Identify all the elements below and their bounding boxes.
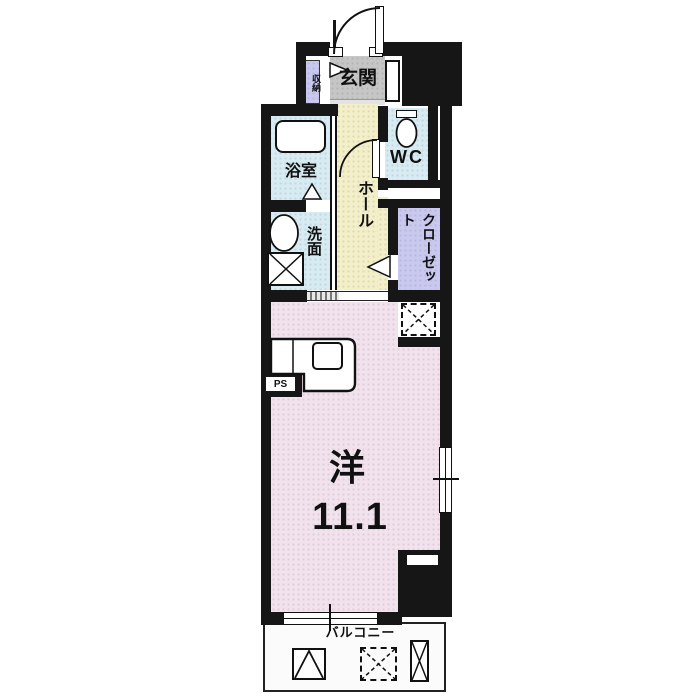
pipe-space-box: PS	[266, 377, 295, 391]
washing-machine-space-icon	[267, 252, 304, 286]
toilet-tank-icon	[396, 110, 417, 118]
hall-floor-lower	[378, 197, 388, 290]
toilet-label: WC	[387, 147, 427, 168]
sliding-door-pocket	[305, 291, 339, 301]
wall	[378, 106, 388, 142]
wall	[388, 208, 398, 255]
wall	[428, 106, 438, 183]
wall	[261, 104, 271, 625]
entrance-storage-label: 収納	[304, 63, 321, 103]
wall	[378, 612, 402, 625]
window-frame-line	[445, 448, 446, 512]
wall	[261, 290, 307, 302]
washroom-label: 洗面	[302, 226, 322, 284]
balcony-laundry-space-icon	[360, 647, 397, 681]
wc-door-leaf	[372, 139, 380, 178]
refrigerator-space-icon	[401, 303, 436, 336]
wall	[398, 337, 444, 347]
wall	[261, 104, 338, 116]
partition-board-icon	[410, 640, 429, 682]
wall	[378, 199, 440, 208]
main-room-size-label: 11.1	[290, 496, 410, 540]
bathroom-label: 浴室	[277, 163, 325, 181]
main-room-type-label: 洋	[325, 447, 369, 488]
toilet-floor	[385, 108, 428, 183]
evacuation-hatch-icon	[292, 648, 326, 680]
closet-label: クローゼット	[399, 213, 439, 283]
washroom-hall-wall	[330, 116, 337, 290]
entrance-door-leaf	[375, 6, 384, 54]
balcony-label: バルコニー	[298, 626, 423, 641]
wall	[388, 290, 440, 302]
entrance-label: 玄関	[332, 68, 384, 90]
shoe-cabinet	[385, 60, 400, 102]
balcony-window-frame-line	[284, 618, 377, 619]
pipe-space-label: PS	[274, 379, 287, 390]
wall-niche	[407, 555, 438, 565]
bathtub-icon	[275, 120, 326, 153]
wall	[402, 50, 462, 106]
wall	[266, 200, 306, 212]
floor-plan: PS 玄関 収納 浴室 洗面 WC ホール クローゼット 洋 11.1 バルコニ…	[0, 0, 700, 700]
hall-label: ホール	[352, 180, 372, 246]
entrance-door-jamb	[328, 47, 343, 57]
wall	[261, 612, 283, 625]
hall-room-doorway	[339, 291, 390, 301]
